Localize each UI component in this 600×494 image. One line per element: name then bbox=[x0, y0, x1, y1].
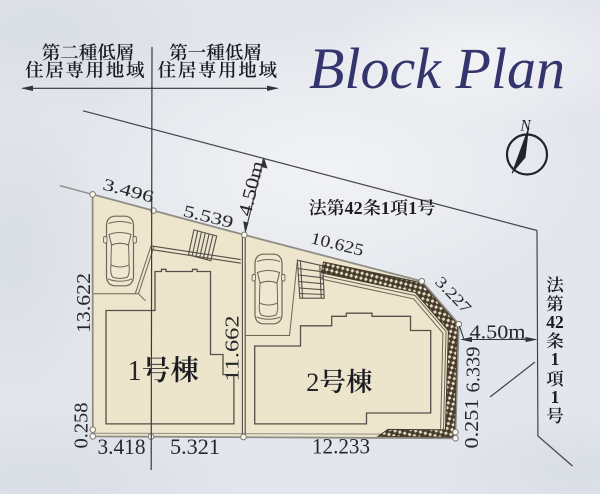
svg-text:1: 1 bbox=[551, 349, 560, 369]
svg-text:6.339: 6.339 bbox=[463, 347, 485, 393]
svg-text:1: 1 bbox=[551, 387, 560, 407]
svg-text:0.251: 0.251 bbox=[461, 399, 483, 449]
svg-text:42: 42 bbox=[546, 312, 564, 332]
svg-text:5.321: 5.321 bbox=[170, 434, 220, 459]
svg-text:13.622: 13.622 bbox=[73, 273, 95, 333]
svg-text:4.50m: 4.50m bbox=[470, 322, 526, 344]
svg-text:Block Plan: Block Plan bbox=[309, 36, 565, 101]
svg-text:1: 1 bbox=[127, 356, 141, 387]
svg-text:1: 1 bbox=[408, 198, 417, 218]
svg-text:2: 2 bbox=[306, 367, 319, 397]
svg-text:1: 1 bbox=[381, 198, 390, 218]
svg-text:0.258: 0.258 bbox=[71, 403, 93, 449]
svg-text:11.662: 11.662 bbox=[222, 316, 244, 382]
svg-text:12.233: 12.233 bbox=[312, 434, 370, 459]
svg-text:42: 42 bbox=[345, 198, 363, 218]
svg-text:3.418: 3.418 bbox=[98, 434, 146, 459]
svg-text:N: N bbox=[519, 118, 532, 135]
